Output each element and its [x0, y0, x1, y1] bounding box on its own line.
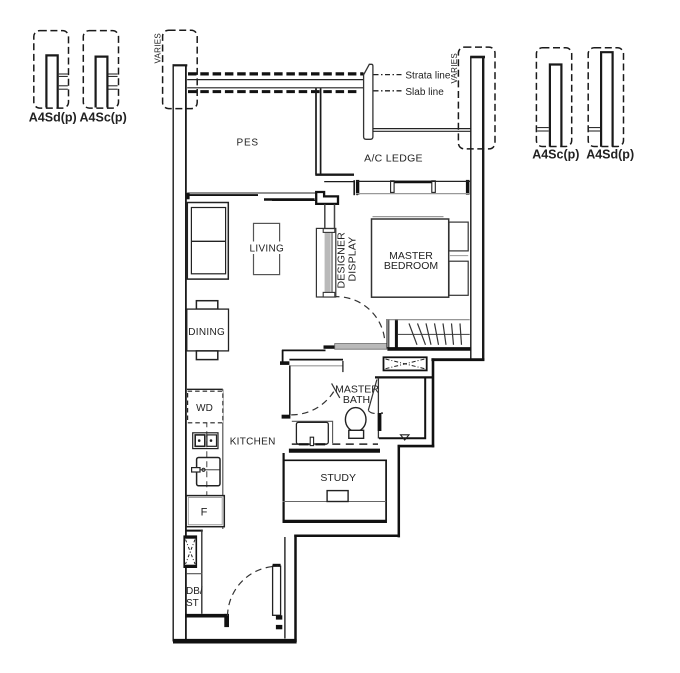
svg-text:Slab line: Slab line	[405, 87, 444, 98]
svg-text:DISPLAY: DISPLAY	[347, 237, 359, 282]
svg-text:KITCHEN: KITCHEN	[230, 437, 276, 448]
svg-text:BATH: BATH	[343, 394, 370, 406]
svg-text:A4Sd(p): A4Sd(p)	[29, 111, 77, 125]
svg-text:WD: WD	[196, 403, 213, 414]
svg-text:Strata line: Strata line	[405, 71, 450, 82]
svg-text:ST: ST	[186, 598, 199, 609]
svg-text:A4Sd(p): A4Sd(p)	[586, 148, 634, 162]
svg-text:VARIES: VARIES	[450, 53, 459, 84]
svg-text:A/C LEDGE: A/C LEDGE	[364, 153, 423, 165]
svg-text:LIVING: LIVING	[250, 244, 285, 255]
svg-text:DB/: DB/	[186, 586, 203, 597]
svg-text:PES: PES	[236, 137, 258, 148]
svg-text:DINING: DINING	[188, 327, 225, 338]
svg-text:BEDROOM: BEDROOM	[384, 260, 438, 272]
svg-text:VARIES: VARIES	[153, 33, 162, 64]
svg-text:A4Sc(p): A4Sc(p)	[80, 111, 127, 125]
svg-text:STUDY: STUDY	[320, 472, 356, 484]
svg-text:F: F	[201, 507, 208, 519]
svg-text:A4Sc(p): A4Sc(p)	[532, 148, 579, 162]
